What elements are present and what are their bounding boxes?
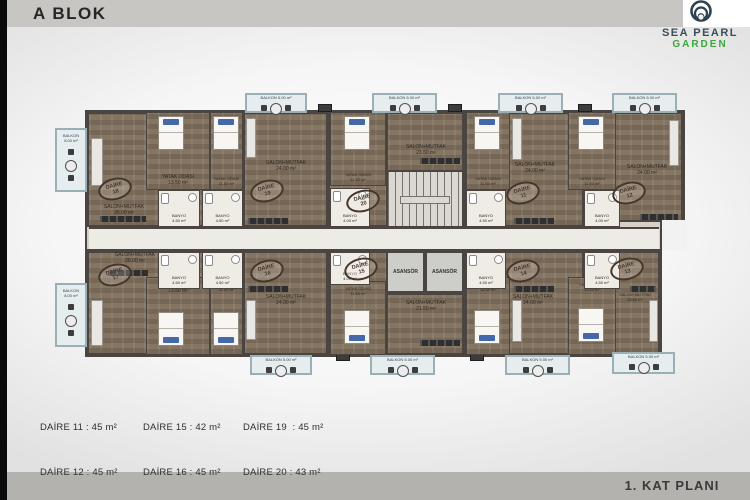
room-label-salon-13: SALON+MUTFAK28.60 m² <box>612 292 658 302</box>
balcony-table <box>275 365 287 377</box>
room-label-banyo-18: BANYO4.50 m² <box>159 214 199 224</box>
elevator-2: ASANSÖR <box>425 251 464 293</box>
room-area: 4.50 m² <box>585 281 619 286</box>
room-area: 4.00 m² <box>585 219 619 224</box>
room-area: 5.00 m² <box>278 95 292 100</box>
room-label-yatak-15: YATAK ODASI11.50 m² <box>330 286 386 296</box>
legend-column-3: DAİRE 19 : 45 m² DAİRE 20 : 43 m² <box>243 390 323 500</box>
room-area: 11.50 m² <box>568 181 616 186</box>
legend-item: DAİRE 15 : 42 m² <box>143 420 221 435</box>
bed <box>158 116 184 150</box>
stamp-number: 12 <box>626 192 633 199</box>
room-name: BALKON <box>522 357 538 362</box>
bathroom-daire-11: BANYO4.50 m² <box>466 190 506 227</box>
room-area: 8.00 m² <box>64 293 78 298</box>
left-black-bar <box>0 0 7 500</box>
stamp-number: 18 <box>112 188 119 195</box>
bathroom-daire-14: BANYO4.50 m² <box>466 252 506 289</box>
sofa <box>91 138 103 186</box>
balcony-daire-17: BALKON8.00 m² <box>55 283 87 347</box>
room-area: 5.00 m² <box>532 95 546 100</box>
kitchen-counter <box>248 286 288 292</box>
room-label-banyo-11: BANYO4.50 m² <box>467 214 505 224</box>
room-area: 21.50 m² <box>390 306 462 312</box>
floor-plan-page: A BLOK 1. KAT PLANI SEA PEARL GARDEN ASA… <box>0 0 750 500</box>
room-area: 13.50 m² <box>146 288 210 294</box>
kitchen-counter <box>514 286 554 292</box>
balcony-label: BALKON 5.00 m² <box>500 96 561 101</box>
kitchen-counter <box>100 216 146 222</box>
room-area: 24.00 m² <box>246 300 326 306</box>
balcony-daire-15: BALKON 5.00 m² <box>370 355 435 375</box>
room-area: 24.00 m² <box>500 168 570 174</box>
logo-name: SEA PEARL <box>652 27 748 39</box>
balcony-table <box>532 365 544 377</box>
sofa <box>512 118 522 160</box>
legend-item: DAİRE 11 : 45 m² <box>40 420 118 435</box>
balcony-label: BALKON 5.00 m² <box>507 358 568 363</box>
balcony-label: BALKON 5.00 m² <box>614 96 675 101</box>
room-label-banyo-19: BANYO4.50 m² <box>203 214 242 224</box>
balcony-label: BALKON 5.00 m² <box>252 358 310 363</box>
room-label-salon-18: SALON+MUTFAK26.00 m² <box>92 204 156 217</box>
corridor <box>89 227 659 251</box>
stamp-number: 13 <box>624 268 631 275</box>
bed <box>344 310 370 344</box>
legend-column-2: DAİRE 15 : 42 m² DAİRE 16 : 45 m² DAİRE … <box>143 390 221 500</box>
stamp-number: 17 <box>112 274 119 281</box>
room-area: 13.50 m² <box>146 180 210 186</box>
balcony-table <box>639 103 651 115</box>
legend-item: DAİRE 12 : 45 m² <box>40 465 118 480</box>
balcony-table <box>399 103 411 115</box>
room-area: 5.00 m² <box>539 357 553 362</box>
balcony-daire-16: BALKON 5.00 m² <box>250 355 312 375</box>
bed <box>213 116 239 150</box>
room-label-salon-17: SALON+MUTFAK26.00 m² <box>100 252 170 265</box>
legend-column-1: DAİRE 11 : 45 m² DAİRE 12 : 45 m² DAİRE … <box>40 390 118 500</box>
room-name: BALKON <box>629 95 645 100</box>
room-name: BALKON <box>389 95 405 100</box>
room-area: 28.60 m² <box>612 297 658 302</box>
bed <box>158 312 184 346</box>
stamp-number: 14 <box>520 270 527 277</box>
room-label-yatak-12: YATAK ODASI11.50 m² <box>568 176 616 186</box>
elevator-2-label: ASANSÖR <box>432 269 457 275</box>
room-area: 11.50 m² <box>330 177 386 182</box>
room-area: 5.00 m² <box>404 357 418 362</box>
balcony-daire-18: BALKON8.00 m² <box>55 128 87 192</box>
room-label-banyo-16: BANYO4.50 m² <box>203 276 242 286</box>
header-band <box>7 0 683 27</box>
stamp-number: 20 <box>360 200 367 207</box>
elevator-1: ASANSÖR <box>386 251 425 293</box>
sofa <box>649 300 658 342</box>
room-label-yatak-19: YATAK ODASI11.50 m² <box>210 176 243 186</box>
shaft-vent <box>448 104 462 112</box>
floor-plan-label: 1. KAT PLANI <box>602 478 742 493</box>
room-name: BALKON <box>515 95 531 100</box>
elevator-1-label: ASANSÖR <box>393 269 418 275</box>
balcony-daire-19: BALKON 5.00 m² <box>245 93 307 113</box>
room-area: 5.00 m² <box>283 357 297 362</box>
room-area: 8.00 m² <box>64 138 78 143</box>
room-area: 5.00 m² <box>645 354 659 359</box>
room-label-salon-12: SALON+MUTFAK24.00 m² <box>614 164 680 177</box>
shaft-vent <box>578 104 592 112</box>
kitchen-counter <box>514 218 554 224</box>
room-area: 24.00 m² <box>498 300 568 306</box>
bed <box>578 308 604 342</box>
room-label-salon-15: SALON+MUTFAK21.50 m² <box>390 300 462 313</box>
balcony-table <box>65 315 77 327</box>
stairwell <box>386 170 464 228</box>
kitchen-counter <box>420 158 460 164</box>
stamp-number: 15 <box>358 268 365 275</box>
room-area: 24.00 m² <box>614 170 680 176</box>
sofa <box>91 300 103 346</box>
room-label-banyo-14: BANYO4.50 m² <box>467 276 505 286</box>
room-label-salon-16: SALON+MUTFAK24.00 m² <box>246 294 326 307</box>
sofa <box>669 120 679 166</box>
room-label-banyo-20: BANYO4.00 m² <box>331 214 369 224</box>
balcony-label: BALKON8.00 m² <box>57 289 85 298</box>
bathroom-daire-19: BANYO4.50 m² <box>202 190 243 227</box>
balcony-daire-13: BALKON 5.00 m² <box>612 352 675 374</box>
stamp-number: 11 <box>520 192 527 199</box>
balcony-label: BALKON 5.00 m² <box>374 96 435 101</box>
shaft-vent <box>318 104 332 112</box>
balcony-daire-14: BALKON 5.00 m² <box>505 355 570 375</box>
room-area: 26.00 m² <box>92 210 156 216</box>
building-step-notch <box>660 220 687 251</box>
room-label-yatak-11: YATAK ODASI11.50 m² <box>466 176 510 186</box>
balcony-table <box>65 160 77 172</box>
balcony-label: BALKON8.00 m² <box>57 134 85 143</box>
room-label-salon-14: SALON+MUTFAK24.00 m² <box>498 294 568 307</box>
room-label-yatak-18: YATAK ODASI13.50 m² <box>146 174 210 187</box>
room-label-banyo-17: BANYO4.50 m² <box>159 276 199 286</box>
legend-item: DAİRE 20 : 43 m² <box>243 465 323 480</box>
stamp-number: 19 <box>264 190 271 197</box>
bed <box>474 310 500 344</box>
balcony-label: BALKON 5.00 m² <box>247 96 305 101</box>
room-area: 4.50 m² <box>203 281 242 286</box>
room-label-banyo-12: BANYO4.00 m² <box>585 214 619 224</box>
room-label-salon-19: SALON+MUTFAK24.00 m² <box>246 160 326 173</box>
balcony-table <box>638 362 650 374</box>
room-name: BALKON <box>261 95 277 100</box>
room-area: 23.50 m² <box>390 150 462 156</box>
room-name: BALKON <box>628 354 644 359</box>
page-title: A BLOK <box>33 4 107 24</box>
sea-pearl-shell-icon <box>678 0 724 27</box>
room-area: 11.50 m² <box>330 291 386 296</box>
bed <box>578 116 604 150</box>
kitchen-counter <box>248 218 288 224</box>
bed <box>213 312 239 346</box>
balcony-table <box>270 103 282 115</box>
logo-subtitle: GARDEN <box>652 39 748 50</box>
room-area: 4.50 m² <box>467 281 505 286</box>
bed <box>344 116 370 150</box>
room-label-salon-20: SALON+MUTFAK23.50 m² <box>390 144 462 157</box>
room-area: 5.00 m² <box>646 95 660 100</box>
balcony-daire-12: BALKON 5.00 m² <box>612 93 677 113</box>
stamp-number: 16 <box>264 270 271 277</box>
room-name: BALKON <box>387 357 403 362</box>
legend-item: DAİRE 16 : 45 m² <box>143 465 221 480</box>
room-label-salon-11: SALON+MUTFAK24.00 m² <box>500 162 570 175</box>
balcony-table <box>525 103 537 115</box>
balcony-table <box>397 365 409 377</box>
balcony-daire-20: BALKON 5.00 m² <box>372 93 437 113</box>
bathroom-daire-18: BANYO4.50 m² <box>158 190 200 227</box>
room-area: 11.50 m² <box>466 181 510 186</box>
room-area: 5.00 m² <box>406 95 420 100</box>
bed <box>474 116 500 150</box>
room-area: 4.50 m² <box>159 219 199 224</box>
room-area: 4.50 m² <box>159 281 199 286</box>
balcony-label: BALKON 5.00 m² <box>614 355 673 360</box>
balcony-daire-11: BALKON 5.00 m² <box>498 93 563 113</box>
room-area: 4.50 m² <box>203 219 242 224</box>
legend-item: DAİRE 19 : 45 m² <box>243 420 323 435</box>
kitchen-counter <box>640 214 678 220</box>
room-area: 4.50 m² <box>467 219 505 224</box>
sofa <box>246 118 256 158</box>
room-area: 24.00 m² <box>246 166 326 172</box>
bathroom-daire-16: BANYO4.50 m² <box>202 252 243 289</box>
balcony-label: BALKON 5.00 m² <box>372 358 433 363</box>
room-area: 4.00 m² <box>331 219 369 224</box>
room-label-yatak-20: YATAK ODASI11.50 m² <box>330 172 386 182</box>
kitchen-counter <box>420 340 460 346</box>
room-area: 11.50 m² <box>210 181 243 186</box>
room-name: BALKON <box>266 357 282 362</box>
